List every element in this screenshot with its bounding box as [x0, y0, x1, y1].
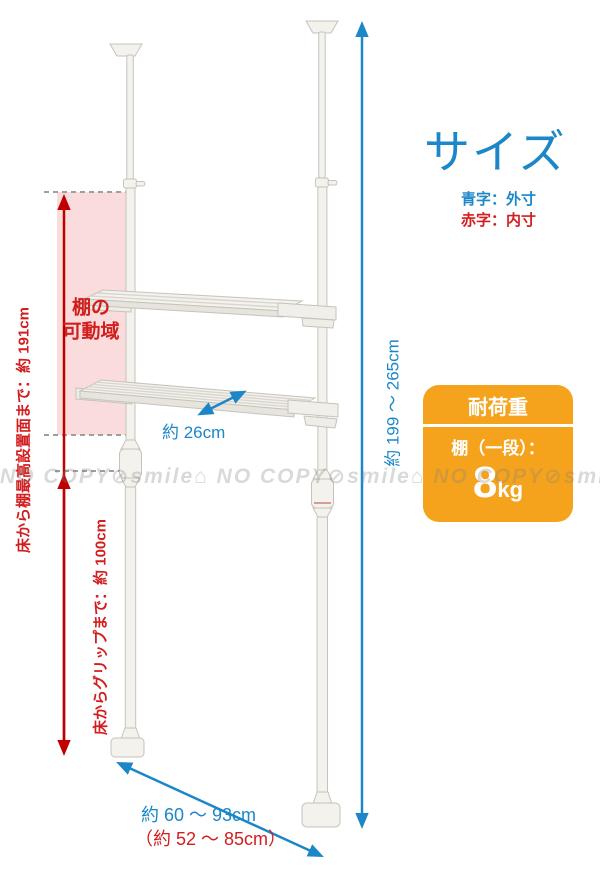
right-main-pole — [318, 187, 327, 470]
right-lower-pole — [317, 517, 327, 797]
shelf-depth-label: 約 26cm — [162, 418, 225, 443]
load-capacity-header: 耐荷重 — [423, 385, 573, 424]
legend-inner-dimensions: 赤字：内寸 — [461, 209, 536, 230]
left-lower-pole — [125, 487, 135, 732]
left-ceiling-plate — [110, 44, 142, 56]
page-title: サイズ — [424, 116, 567, 182]
shelf-range-label: 棚の 可動域 — [62, 296, 119, 344]
floor-to-top-shelf-label: 床から棚最高設置面まで：約 191cm — [13, 307, 34, 553]
load-value-unit: kg — [497, 477, 523, 502]
left-pole-hook — [136, 182, 145, 187]
inner-width-label: （約 52 〜 85cm） — [135, 825, 286, 851]
floor-to-grip-label: 床からグリップまで：約 100cm — [90, 519, 111, 735]
load-capacity-value: 8kg — [423, 459, 573, 507]
right-upper-pole — [319, 32, 326, 178]
load-shelf-label: 棚（一段）： — [423, 434, 573, 459]
product-size-diagram: サイズ 青字：外寸 赤字：内寸 約 199 〜 265cm 床から棚最高設置面ま… — [0, 0, 600, 890]
load-value-number: 8 — [473, 458, 497, 507]
lower-shelf-extension-bracket — [288, 400, 338, 417]
right-pole-hook — [328, 181, 337, 186]
left-foot — [111, 738, 144, 757]
left-upper-pole — [127, 55, 134, 182]
right-foot — [302, 803, 340, 827]
load-box-divider — [423, 424, 573, 427]
right-ceiling-plate — [306, 21, 338, 33]
legend-outer-dimensions: 青字：外寸 — [461, 188, 536, 209]
right-pole-collar — [315, 178, 328, 187]
outer-width-label: 約 60 〜 93cm — [141, 801, 256, 827]
overall-height-label: 約 199 〜 265cm — [379, 339, 404, 467]
left-pole-grip — [120, 449, 142, 478]
left-pole-collar — [124, 179, 137, 188]
load-capacity-box: 耐荷重 棚（一段）： 8kg — [423, 385, 573, 522]
